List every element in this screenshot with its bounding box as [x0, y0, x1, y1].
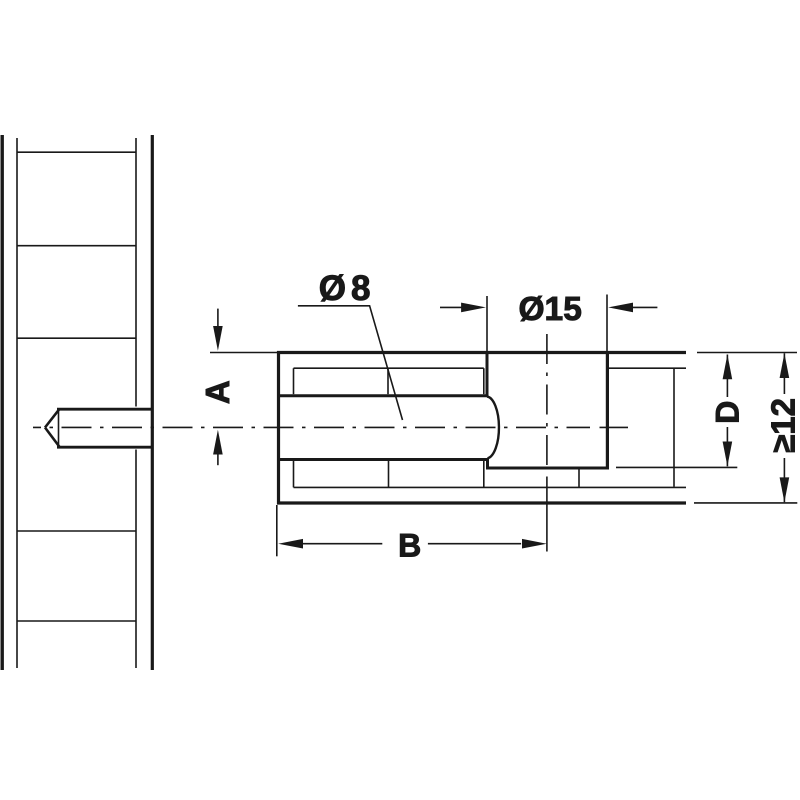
svg-text:D: D — [710, 401, 746, 424]
svg-text:A: A — [199, 380, 236, 404]
svg-text:Ø: Ø — [319, 269, 346, 308]
svg-text:B: B — [398, 528, 421, 564]
svg-text:≥12: ≥12 — [764, 398, 800, 453]
svg-text:Ø15: Ø15 — [519, 291, 582, 328]
svg-text:8: 8 — [351, 269, 370, 308]
